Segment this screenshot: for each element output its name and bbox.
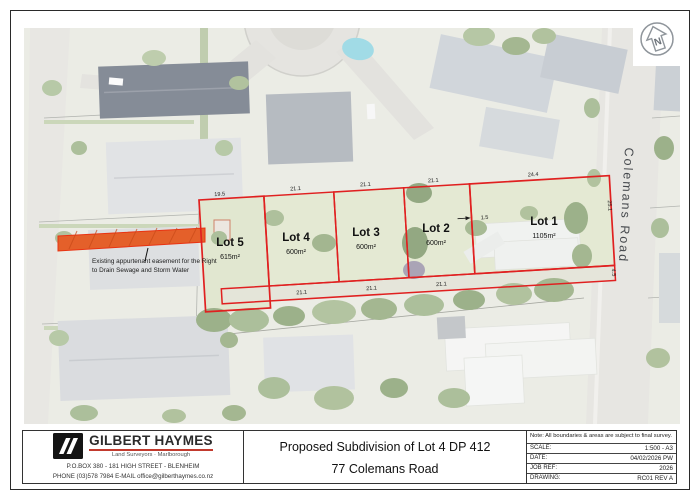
info-label: SCALE: bbox=[530, 445, 551, 451]
lot-name: Lot 3 bbox=[352, 227, 379, 239]
lot-area: 1105m² bbox=[532, 233, 556, 240]
company-name: GILBERT HAYMES bbox=[89, 434, 213, 448]
company-address-block: P.O.BOX 380 - 181 HIGH STREET - BLENHEIM… bbox=[53, 462, 213, 481]
info-row-scale: SCALE: 1:500 - A3 bbox=[527, 443, 676, 453]
dim-label: 21.1 bbox=[366, 286, 377, 293]
title-block: GILBERT HAYMES Land Surveyors · Marlboro… bbox=[22, 430, 678, 484]
dim-label: 21.1 bbox=[360, 182, 371, 189]
lot-area: 615m² bbox=[220, 254, 241, 261]
company-contact: PHONE (03)578 7984 E-MAIL office@gilbert… bbox=[53, 472, 213, 482]
info-value: RC01 REV A bbox=[637, 475, 673, 482]
info-row-drawing: DRAWING: RC01 REV A bbox=[527, 473, 676, 483]
info-value: 2026 bbox=[659, 465, 673, 472]
info-row-jobref: JOB REF: 2026 bbox=[527, 463, 676, 473]
dim-label: 1.5 bbox=[481, 215, 489, 221]
lot-name: Lot 5 bbox=[216, 237, 244, 249]
drawing-subtitle: 77 Colemans Road bbox=[244, 459, 526, 481]
info-value: 1:500 - A3 bbox=[645, 445, 673, 452]
lot-name: Lot 1 bbox=[530, 216, 558, 228]
drawing-title: Proposed Subdivision of Lot 4 DP 412 bbox=[244, 437, 526, 459]
lot-area: 600m² bbox=[286, 249, 307, 256]
info-row-date: DATE: 04/02/2026 PW bbox=[527, 453, 676, 463]
lot-area: 600m² bbox=[356, 244, 377, 251]
info-label: JOB REF: bbox=[530, 465, 557, 471]
gilbert-haymes-logo-icon bbox=[53, 433, 83, 459]
info-label: DATE: bbox=[530, 455, 547, 461]
drawing-info-panel: Note: All boundaries & areas are subject… bbox=[526, 430, 677, 484]
lot-name: Lot 2 bbox=[422, 223, 449, 235]
dim-label: 24.4 bbox=[528, 172, 539, 179]
easement-note: Existing appurtenant easement for the Ri… bbox=[92, 258, 218, 276]
plan-sheet: 19.5 21.1 21.1 21.1 24.4 21.1 21.1 21.1 … bbox=[0, 0, 700, 500]
survey-note: Note: All boundaries & areas are subject… bbox=[527, 431, 676, 443]
dim-label: 21.1 bbox=[428, 178, 439, 185]
dim-label: 25.1 bbox=[606, 200, 613, 211]
info-label: DRAWING: bbox=[530, 475, 560, 481]
dim-label: 4.5 bbox=[610, 269, 616, 277]
lot-area: 600m² bbox=[426, 240, 447, 247]
brand-text: GILBERT HAYMES Land Surveyors · Marlboro… bbox=[89, 434, 213, 458]
info-value: 04/02/2026 PW bbox=[630, 455, 673, 462]
north-arrow: N bbox=[633, 14, 683, 66]
company-tagline: Land Surveyors · Marlborough bbox=[89, 452, 213, 458]
dim-label: 21.1 bbox=[290, 186, 301, 193]
dim-label: 19.5 bbox=[214, 191, 225, 198]
brand-row: GILBERT HAYMES Land Surveyors · Marlboro… bbox=[53, 433, 213, 459]
dim-label: 21.1 bbox=[436, 281, 447, 288]
brand-underline bbox=[89, 449, 213, 451]
lot-name: Lot 4 bbox=[282, 232, 310, 244]
drawing-title-panel: Proposed Subdivision of Lot 4 DP 412 77 … bbox=[243, 430, 527, 484]
photo-wash bbox=[24, 28, 680, 424]
company-address: P.O.BOX 380 - 181 HIGH STREET - BLENHEIM bbox=[53, 462, 213, 472]
surveyor-panel: GILBERT HAYMES Land Surveyors · Marlboro… bbox=[22, 430, 244, 484]
dim-label: 21.1 bbox=[296, 290, 307, 297]
aerial-map: 19.5 21.1 21.1 21.1 24.4 21.1 21.1 21.1 … bbox=[24, 28, 680, 424]
